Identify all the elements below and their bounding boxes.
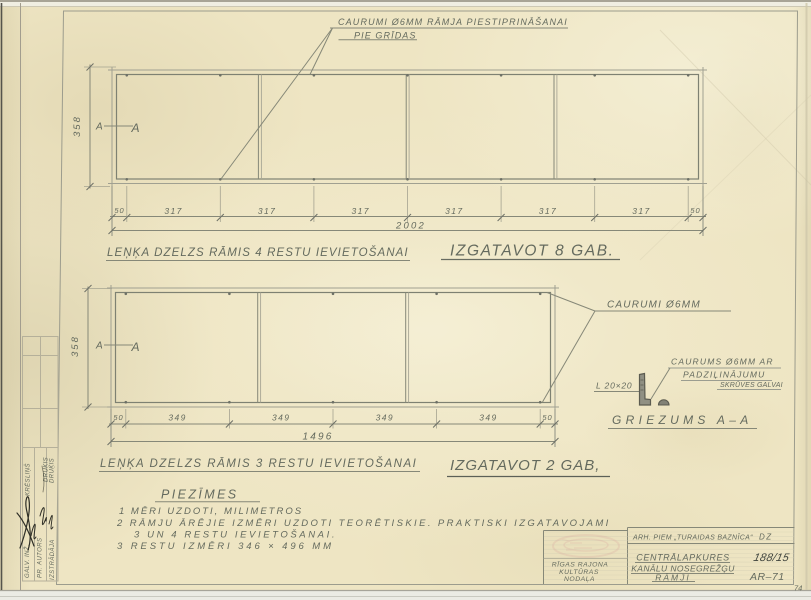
svg-text:317: 317 [445,206,463,216]
svg-text:3 RESTU IZMĒRI 346 × 496: 3 RESTU IZMĒRI 346 × 496 MM [117,541,334,552]
svg-text:NODAĻA: NODAĻA [564,576,595,583]
svg-text:DZ: DZ [759,533,773,542]
svg-text:CAURUMI Ø6MM RĀMJA PIESTIPRIN: CAURUMI Ø6MM RĀMJA PIESTIPRINĀŠANAI [338,17,568,27]
svg-text:358: 358 [70,335,81,357]
svg-text:ARH. PIEM „TURAIDAS BAZNĪCA“: ARH. PIEM „TURAIDAS BAZNĪCA“ [632,534,753,542]
svg-text:349: 349 [479,413,497,423]
svg-text:2002: 2002 [395,221,426,232]
svg-text:IZSTRĀDĀJA: IZSTRĀDĀJA [49,539,56,580]
svg-text:IZGATAVOT 8 GAB.: IZGATAVOT 8 GAB. [450,243,615,260]
svg-text:3 UN 4 RESTU IEVIETOŠANAI.: 3 UN 4 RESTU IEVIETOŠANAI. [134,530,337,541]
svg-text:KULTŪRAS: KULTŪRAS [559,568,599,576]
svg-text:A: A [131,340,140,354]
svg-text:AR–71: AR–71 [749,571,785,583]
svg-text:DRUĶIS: DRUĶIS [50,458,56,483]
svg-text:1 MĒRI UZDOTI, MILIMETROS: 1 MĒRI UZDOTI, MILIMETROS [119,506,303,517]
svg-text:50: 50 [690,206,700,215]
svg-text:1496: 1496 [302,432,333,443]
svg-text:349: 349 [272,413,290,423]
svg-text:CAURUMS Ø6MM AR: CAURUMS Ø6MM AR [671,357,774,367]
svg-text:GRIEZUMS A–A: GRIEZUMS A–A [612,413,753,427]
svg-text:RĪGAS RAJONA: RĪGAS RAJONA [552,561,609,569]
svg-text:317: 317 [352,206,370,216]
svg-text:50: 50 [114,206,124,215]
svg-text:PR. AUTORS: PR. AUTORS [38,538,44,578]
svg-text:IZGATAVOT 2 GAB,: IZGATAVOT 2 GAB, [450,457,600,474]
svg-text:CENTRĀLAPKURES: CENTRĀLAPKURES [636,553,729,563]
svg-text:GALV. INŽ.: GALV. INŽ. [23,544,31,578]
svg-text:KRĒSLIŅŠ: KRĒSLIŅŠ [25,463,32,496]
svg-text:74: 74 [794,584,802,593]
svg-text:L 20×20: L 20×20 [596,381,632,391]
svg-text:CAURUMI Ø6MM: CAURUMI Ø6MM [607,300,701,311]
svg-text:A: A [95,122,103,133]
svg-text:188/15: 188/15 [752,552,790,564]
svg-text:358: 358 [72,115,83,137]
svg-text:A: A [95,341,103,352]
svg-text:50: 50 [113,413,123,422]
svg-text:317: 317 [539,206,557,216]
svg-text:SKRŪVES GALVAI: SKRŪVES GALVAI [720,381,783,389]
svg-text:349: 349 [168,413,186,423]
svg-text:50: 50 [542,413,552,422]
svg-text:LEŅĶA DZELZS RĀMIS 3 RESTU IE: LEŅĶA DZELZS RĀMIS 3 RESTU IEVIETOŠANAI [100,457,417,470]
svg-text:PIE GRĪDAS: PIE GRĪDAS [354,31,417,41]
svg-text:LEŅĶA DZELZS RĀMIS 4 RESTU IE: LEŅĶA DZELZS RĀMIS 4 RESTU IEVIETOŠANAI [107,246,409,259]
svg-text:317: 317 [632,206,650,216]
svg-text:317: 317 [164,206,182,216]
svg-text:PIEZĪMES: PIEZĪMES [161,488,239,502]
svg-text:349: 349 [376,413,394,423]
svg-text:A: A [131,121,140,135]
svg-text:PADZIĻINĀJUMU: PADZIĻINĀJUMU [683,370,766,380]
svg-text:2 RĀMJU ĀRĒJIE IZMĒRI UZDOTI: 2 RĀMJU ĀRĒJIE IZMĒRI UZDOTI TEORĒTISKIE… [116,518,611,529]
svg-text:317: 317 [258,206,276,216]
